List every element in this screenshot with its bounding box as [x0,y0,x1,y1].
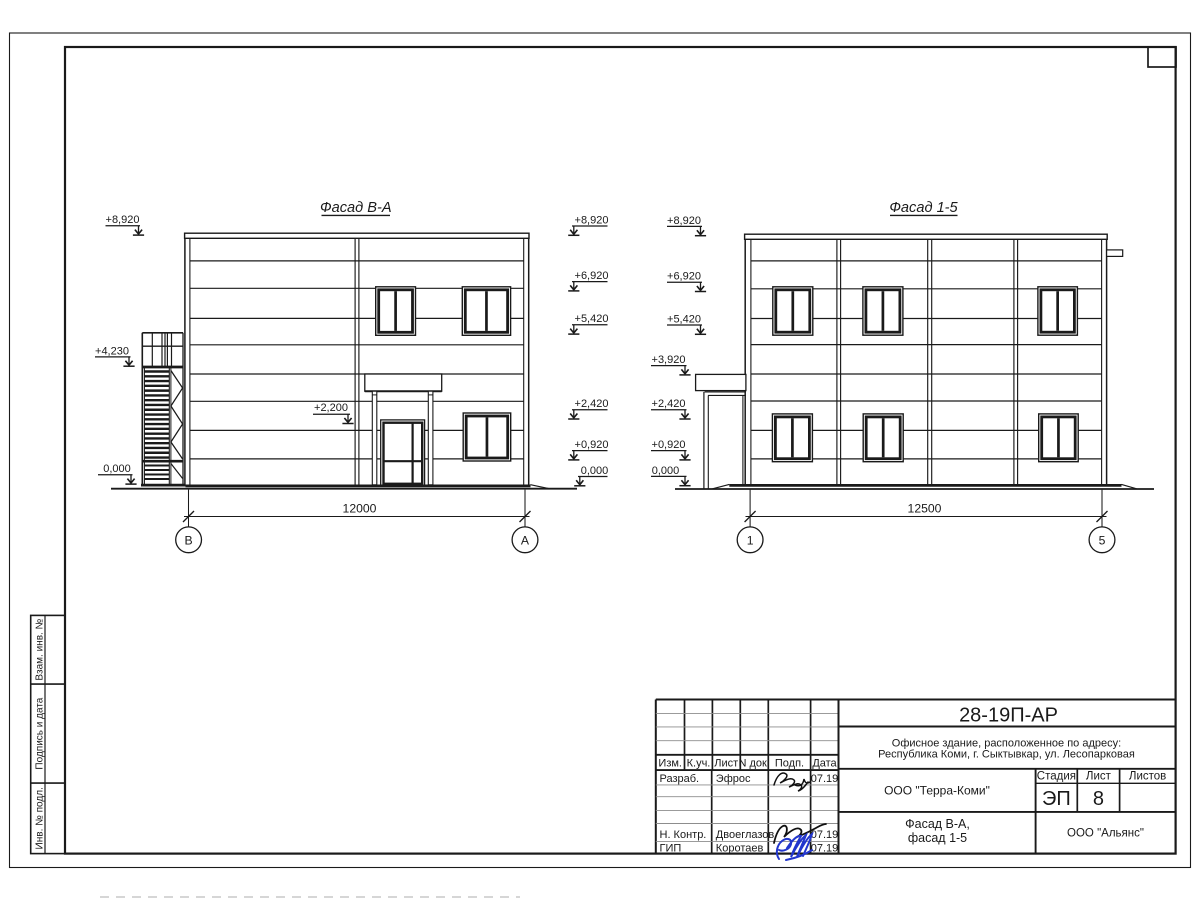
svg-text:Изм.: Изм. [658,758,682,770]
svg-text:+8,920: +8,920 [106,214,140,226]
svg-text:1: 1 [747,533,754,547]
svg-text:В: В [185,533,193,547]
svg-text:+2,420: +2,420 [575,398,609,410]
svg-text:12000: 12000 [343,501,377,515]
svg-text:+5,420: +5,420 [575,313,609,325]
svg-text:Дата: Дата [812,758,837,770]
svg-text:Фасад В-А,: Фасад В-А, [905,817,970,831]
svg-text:+4,230: +4,230 [95,345,129,357]
svg-text:Подп.: Подп. [775,758,804,770]
svg-text:Листов: Листов [1129,771,1166,783]
svg-text:Лист: Лист [714,758,738,770]
svg-text:Стадия: Стадия [1037,771,1076,783]
svg-text:07.19: 07.19 [811,773,839,785]
svg-text:А: А [521,533,530,547]
svg-text:Подпись и дата: Подпись и дата [34,697,45,769]
svg-text:ГИП: ГИП [660,842,682,854]
svg-text:12500: 12500 [908,501,942,515]
svg-text:Разраб.: Разраб. [660,773,700,785]
svg-text:К.уч.: К.уч. [687,758,711,770]
svg-text:0,000: 0,000 [103,463,131,475]
svg-text:28-19П-АР: 28-19П-АР [959,704,1058,726]
svg-text:+0,920: +0,920 [575,439,609,451]
svg-text:Фасад 1-5: Фасад 1-5 [889,200,958,216]
svg-text:Лист: Лист [1086,771,1112,783]
svg-text:Республика Коми, г. Сыктывкар,: Республика Коми, г. Сыктывкар, ул. Лесоп… [878,748,1135,760]
svg-text:5: 5 [1099,533,1106,547]
svg-text:Взам. инв. №: Взам. инв. № [34,618,45,680]
svg-text:0,000: 0,000 [652,465,680,477]
svg-text:07.19: 07.19 [811,829,839,841]
svg-text:8: 8 [1093,788,1104,810]
svg-text:фасад 1-5: фасад 1-5 [908,831,967,845]
svg-text:+2,420: +2,420 [652,398,686,410]
svg-text:+6,920: +6,920 [667,271,701,283]
svg-text:+0,920: +0,920 [652,439,686,451]
svg-text:ООО "Альянс": ООО "Альянс" [1067,828,1144,840]
svg-text:ООО "Терра-Коми": ООО "Терра-Коми" [884,784,990,798]
svg-text:+2,200: +2,200 [314,402,348,414]
svg-text:0,000: 0,000 [581,465,609,477]
svg-text:Н. Контр.: Н. Контр. [660,829,707,841]
svg-text:+8,920: +8,920 [667,215,701,227]
svg-text:+5,420: +5,420 [667,313,701,325]
svg-text:Коротаев: Коротаев [716,842,764,854]
svg-text:Инв. № подл.: Инв. № подл. [34,787,45,849]
svg-text:+6,920: +6,920 [575,270,609,282]
svg-text:07.19: 07.19 [811,842,839,854]
svg-text:ЭП: ЭП [1042,788,1071,810]
svg-text:+3,920: +3,920 [652,354,686,366]
svg-text:N док.: N док. [738,758,769,770]
svg-text:Фасад В-А: Фасад В-А [320,200,392,216]
svg-text:Эфрос: Эфрос [716,773,751,785]
svg-text:+8,920: +8,920 [575,214,609,226]
svg-text:Двоеглазов: Двоеглазов [716,829,775,841]
